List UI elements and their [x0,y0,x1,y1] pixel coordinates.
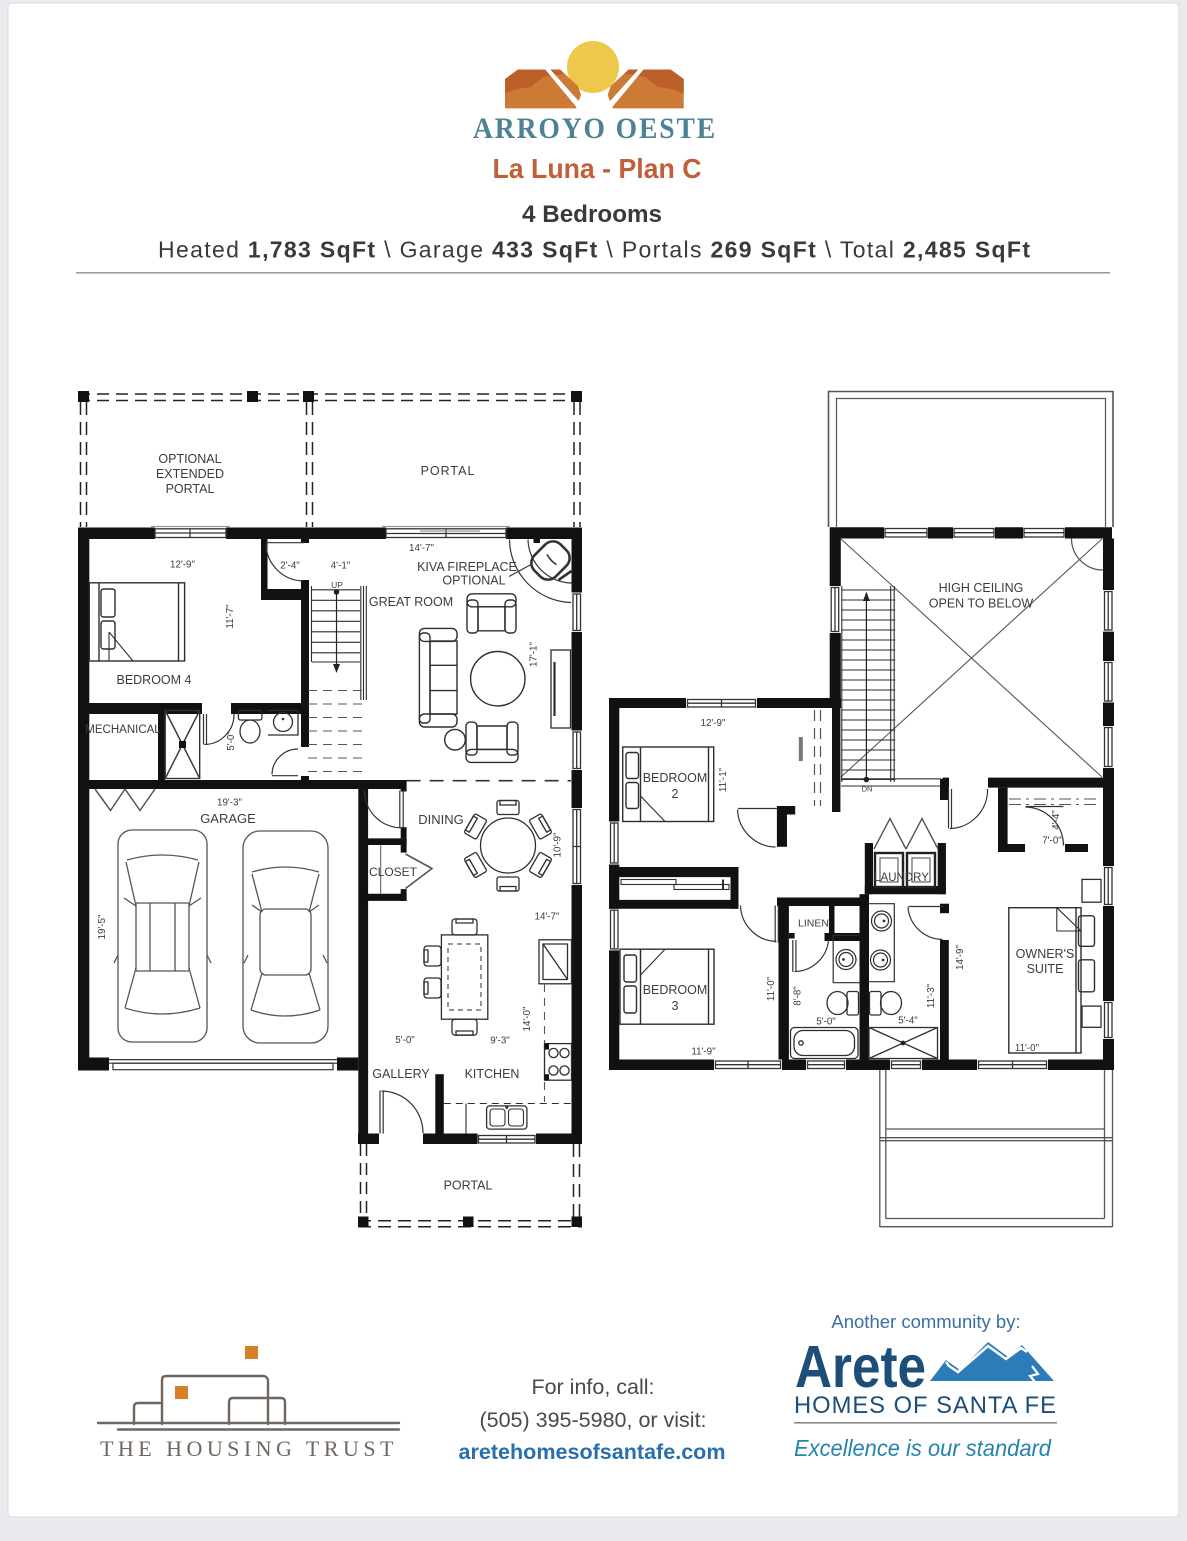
svg-text:HIGH CEILING: HIGH CEILING [939,581,1024,595]
svg-text:OPTIONAL: OPTIONAL [158,452,221,466]
svg-text:GARAGE: GARAGE [200,811,256,826]
svg-text:LAUNDRY: LAUNDRY [874,872,929,884]
svg-text:KIVA FIREPLACE: KIVA FIREPLACE [417,560,517,574]
svg-text:KITCHEN: KITCHEN [465,1067,520,1081]
svg-text:11'-1": 11'-1" [718,767,729,792]
svg-text:LINEN: LINEN [798,918,829,930]
svg-text:BEDROOM: BEDROOM [643,771,708,785]
svg-text:14'-7": 14'-7" [535,912,560,923]
svg-text:aretehomesofsantafe.com: aretehomesofsantafe.com [459,1440,726,1464]
svg-text:CLOSET: CLOSET [369,865,418,879]
svg-text:11'-9": 11'-9" [691,1047,716,1058]
svg-text:EXTENDED: EXTENDED [156,467,224,481]
svg-text:GREAT ROOM: GREAT ROOM [369,595,453,609]
svg-text:Arete: Arete [795,1334,926,1400]
svg-text:4'-4": 4'-4" [1051,810,1062,830]
svg-text:La Luna - Plan C: La Luna - Plan C [493,153,702,184]
svg-text:5'-0": 5'-0" [226,731,237,751]
svg-text:Excellence is our standard: Excellence is our standard [794,1435,1052,1461]
svg-text:2: 2 [672,787,679,801]
svg-text:UP: UP [331,580,343,590]
svg-text:5'-0": 5'-0" [816,1017,836,1028]
svg-text:DINING: DINING [418,812,464,827]
svg-text:SUITE: SUITE [1027,962,1064,976]
svg-text:7'-0": 7'-0" [1042,836,1062,847]
svg-text:DN: DN [862,785,873,794]
svg-text:11'-7": 11'-7" [225,604,236,629]
svg-text:OPTIONAL: OPTIONAL [442,574,505,588]
svg-text:12'-9": 12'-9" [701,718,726,729]
svg-text:PORTAL: PORTAL [421,464,476,478]
svg-text:BEDROOM 4: BEDROOM 4 [116,673,191,687]
svg-text:5'-0": 5'-0" [395,1035,415,1046]
svg-text:19'-5": 19'-5" [97,914,108,939]
svg-text:(505) 395-5980, or visit:: (505) 395-5980, or visit: [479,1408,706,1432]
svg-text:10'-9": 10'-9" [553,832,564,857]
svg-text:11'-0": 11'-0" [766,976,777,1001]
svg-text:8'-8": 8'-8" [793,986,804,1006]
svg-text:4'-1": 4'-1" [331,561,351,572]
svg-text:11'-3": 11'-3" [926,983,937,1008]
svg-text:5'-4": 5'-4" [898,1016,918,1027]
svg-text:14'-7": 14'-7" [409,543,434,554]
svg-text:PORTAL: PORTAL [444,1179,493,1193]
svg-text:Another community by:: Another community by: [831,1311,1020,1332]
svg-text:4 Bedrooms: 4 Bedrooms [522,201,662,228]
svg-text:14'-9": 14'-9" [955,945,966,970]
svg-text:Heated 1,783 SqFt \ Garage 4: Heated 1,783 SqFt \ Garage 433 SqFt \ Po… [158,237,1030,263]
svg-text:9'-3": 9'-3" [490,1036,510,1047]
svg-text:MECHANICAL: MECHANICAL [85,724,161,736]
svg-text:11'-0": 11'-0" [1015,1043,1040,1054]
svg-text:GALLERY: GALLERY [372,1067,430,1081]
svg-text:ARROYO OESTE: ARROYO OESTE [473,112,717,145]
svg-text:BEDROOM: BEDROOM [643,983,708,997]
svg-text:For info, call:: For info, call: [531,1375,654,1399]
svg-text:17'-1": 17'-1" [529,642,540,667]
svg-text:OPEN TO BELOW: OPEN TO BELOW [929,597,1034,611]
svg-text:HOMES OF SANTA FE: HOMES OF SANTA FE [794,1392,1057,1419]
svg-text:19'-3": 19'-3" [217,798,242,809]
svg-text:3: 3 [672,999,679,1013]
svg-text:THE HOUSING TRUST: THE HOUSING TRUST [100,1436,396,1461]
svg-text:OWNER'S: OWNER'S [1016,947,1075,961]
svg-text:2'-4": 2'-4" [280,561,300,572]
svg-text:14'-0": 14'-0" [522,1006,533,1031]
svg-text:PORTAL: PORTAL [166,482,215,496]
svg-text:12'-9": 12'-9" [170,560,195,571]
